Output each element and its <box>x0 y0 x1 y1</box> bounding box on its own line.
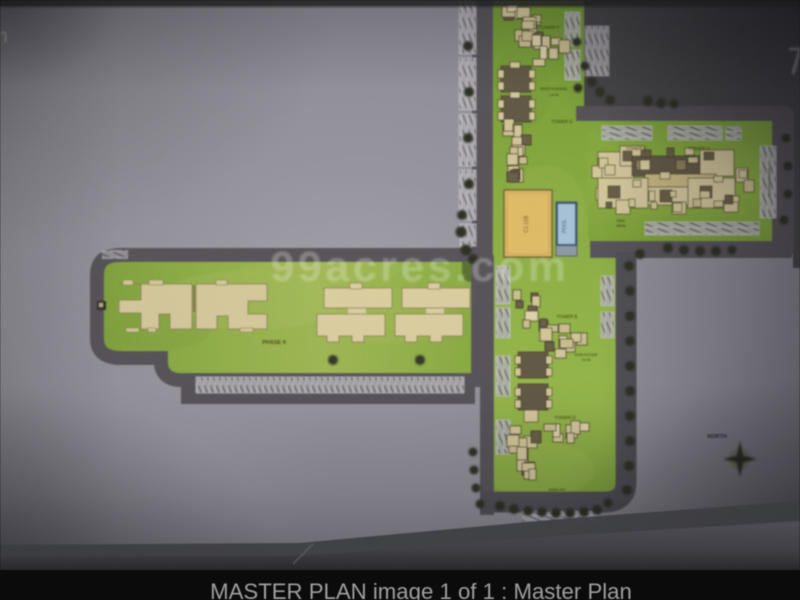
svg-text:MASTER PLAN image 1 of 1 : Mas: MASTER PLAN image 1 of 1 : Master Plan <box>210 579 632 600</box>
